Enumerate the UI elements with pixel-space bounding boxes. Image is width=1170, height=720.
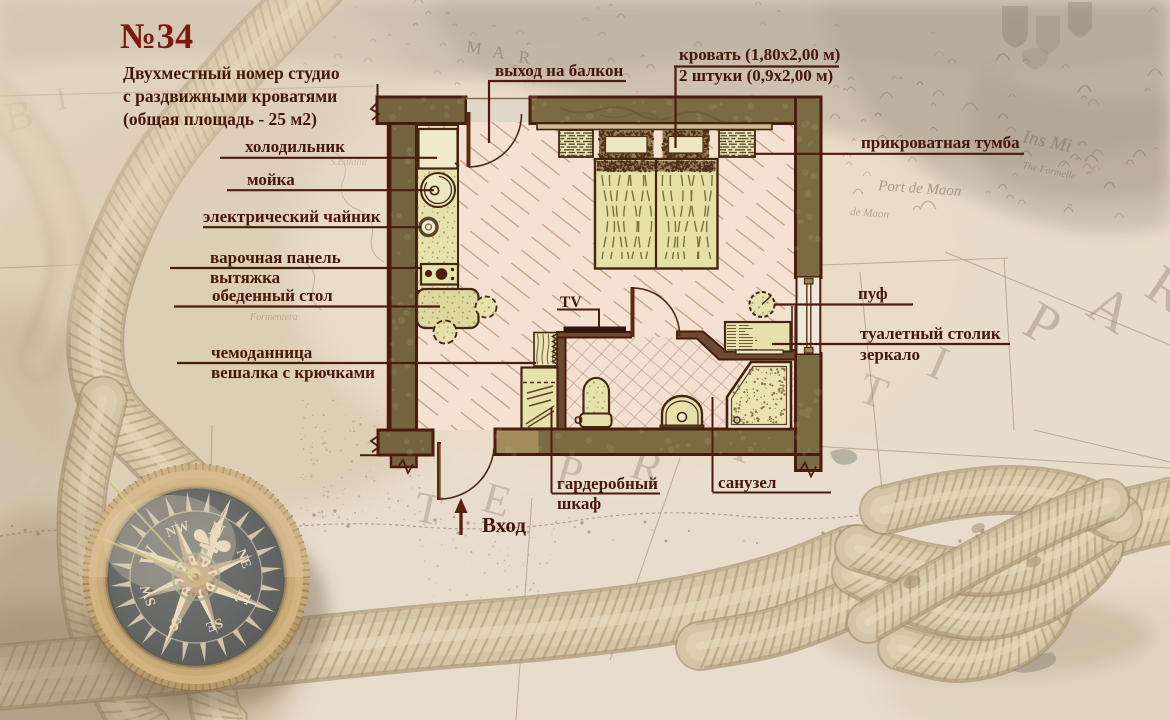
svg-text:№34: №34: [120, 16, 194, 56]
svg-text:мойка: мойка: [247, 170, 295, 189]
svg-text:кровать (1,80х2,00 м): кровать (1,80х2,00 м): [679, 45, 840, 64]
svg-text:пуф: пуф: [858, 284, 888, 303]
svg-text:шкаф: шкаф: [557, 494, 601, 513]
svg-text:с раздвижными кроватями: с раздвижными кроватями: [123, 86, 337, 106]
svg-text:Вход: Вход: [482, 513, 526, 537]
svg-text:вешалка с крючками: вешалка с крючками: [211, 363, 375, 382]
svg-text:прикроватная тумба: прикроватная тумба: [861, 133, 1020, 152]
svg-text:санузел: санузел: [718, 473, 777, 492]
svg-text:обеденный стол: обеденный стол: [212, 286, 333, 305]
svg-text:(общая площадь - 25 м2): (общая площадь - 25 м2): [123, 109, 317, 129]
svg-text:электрический чайник: электрический чайник: [203, 207, 381, 226]
svg-text:вытяжка: вытяжка: [210, 268, 281, 287]
svg-text:выход на балкон: выход на балкон: [495, 61, 623, 80]
svg-text:варочная панель: варочная панель: [210, 248, 341, 267]
svg-text:гардеробный: гардеробный: [557, 474, 658, 493]
svg-text:Двухместный номер студио: Двухместный номер студио: [123, 63, 340, 83]
svg-text:TV: TV: [560, 294, 582, 311]
svg-text:чемоданница: чемоданница: [211, 343, 313, 362]
svg-text:2 штуки (0,9х2,00 м): 2 штуки (0,9х2,00 м): [679, 66, 833, 85]
svg-text:зеркало: зеркало: [860, 345, 920, 364]
svg-text:туалетный столик: туалетный столик: [860, 324, 1001, 343]
svg-text:холодильник: холодильник: [245, 137, 345, 156]
